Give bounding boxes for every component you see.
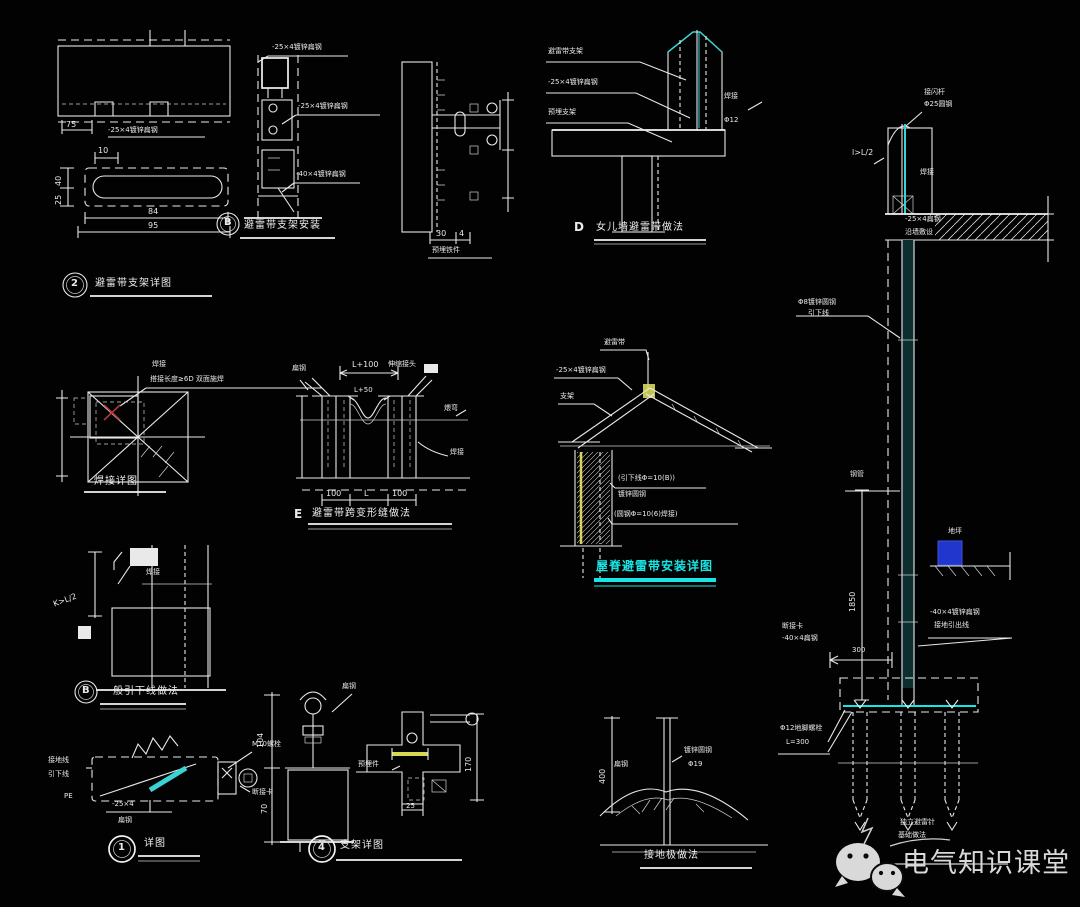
title-ridge: 屋脊避雷带安装详图 bbox=[596, 560, 713, 574]
dim-400: 400 bbox=[598, 769, 607, 784]
dim-84: 84 bbox=[148, 207, 158, 216]
clamp-left-1: 接地线 bbox=[48, 756, 69, 764]
mast-bolt-1: Φ12地脚螺栓 bbox=[780, 724, 822, 732]
badge-b-top: B bbox=[224, 217, 232, 229]
ridge-label-1: 避雷带 bbox=[604, 338, 625, 346]
mast-l3a: 断接卡 bbox=[782, 622, 803, 630]
badge-2: 2 bbox=[71, 278, 78, 290]
detail-clamp-lines bbox=[86, 736, 257, 862]
bracket4-mid-label: 预埋件 bbox=[358, 760, 379, 768]
mast-l2: l>L/2 bbox=[852, 148, 873, 157]
stem-label-1: -25×4镀锌扁钢 bbox=[272, 43, 322, 51]
bracket4-top-label: 扁钢 bbox=[342, 682, 356, 690]
weld-label: 搭接长度≥6D 双面施焊 bbox=[150, 375, 224, 383]
dim-10: 10 bbox=[98, 146, 108, 155]
title-parapet: 女儿墙避雷带做法 bbox=[596, 222, 684, 234]
dim-75: 75 bbox=[66, 120, 76, 129]
mast-l3b: -40×4扁钢 bbox=[782, 634, 818, 642]
mast-top-label-1: 接闪杆 bbox=[924, 88, 945, 96]
dim-30: 30 bbox=[436, 229, 446, 238]
dim-95: 95 bbox=[148, 221, 158, 230]
cad-linework bbox=[0, 0, 1080, 907]
clamp-right-label: 断接卡 bbox=[252, 788, 273, 796]
mast-right-label-2: 接地引出线 bbox=[934, 621, 969, 629]
clamp-pe-note: PE bbox=[64, 792, 73, 800]
rod-right-label-2: Φ19 bbox=[688, 760, 702, 768]
stem-label-3: -40×4镀锌扁钢 bbox=[296, 170, 346, 178]
detail-rodground-lines bbox=[600, 716, 768, 868]
title-stem-bracket: 避雷带支架安装 bbox=[244, 220, 321, 232]
mast-ground-note: 地坪 bbox=[948, 527, 962, 535]
stem-label-2: -25×4镀锌扁钢 bbox=[298, 102, 348, 110]
title-wall-embed: 预埋铁件 bbox=[432, 246, 460, 254]
dim-104: 104 bbox=[256, 733, 265, 748]
watermark-text: 电气知识课堂 bbox=[902, 848, 1070, 879]
title-clamp: 详图 bbox=[144, 838, 166, 850]
detail-joint-lines bbox=[296, 364, 470, 529]
dim-100b: 100 bbox=[392, 489, 407, 498]
joint-label-br: 焊接 bbox=[450, 448, 464, 456]
title-slab-bracket: 避雷带支架详图 bbox=[95, 278, 172, 290]
mast-mid-label-1: Φ8镀锌圆钢 bbox=[798, 298, 836, 306]
rod-right-label-1: 镀锌圆钢 bbox=[684, 746, 712, 754]
mast-band-2: 沿墙敷设 bbox=[905, 228, 933, 236]
mast-band-1: -25×4扁钢 bbox=[905, 215, 941, 223]
ridge-note-a2: 镀锌圆钢 bbox=[618, 490, 646, 498]
dim-25b: 25 bbox=[406, 802, 415, 810]
downlead-note: 焊接 bbox=[146, 568, 160, 576]
dim-300: 300 bbox=[852, 646, 865, 654]
title-downlead: 一般引下线做法 bbox=[102, 686, 179, 698]
joint-label-r: 煨弯 bbox=[444, 404, 458, 412]
joint-label-tl: 扁钢 bbox=[292, 364, 306, 372]
title-joint: 避雷带跨变形缝做法 bbox=[312, 508, 411, 520]
parapet-label-1: 避雷带支架 bbox=[548, 47, 583, 55]
flat-steel-note: -25×4镀锌扁钢 bbox=[108, 126, 158, 134]
parapet-note-a: 焊接 bbox=[724, 92, 738, 100]
mast-mid-label-2: 引下线 bbox=[808, 309, 829, 317]
badge-d: D bbox=[574, 221, 584, 235]
dim-1850: 1850 bbox=[848, 592, 857, 612]
detail-stem-bracket-lines bbox=[217, 55, 380, 238]
parapet-note-b: Φ12 bbox=[724, 116, 738, 124]
badge-4: 4 bbox=[318, 842, 325, 854]
badge-b-low: B bbox=[82, 685, 90, 697]
dim-l50: L+50 bbox=[354, 386, 373, 394]
joint-label-tr: 伸缩接头 bbox=[388, 360, 416, 368]
detail-slab-bracket-lines bbox=[58, 30, 230, 297]
clamp-left-2: 引下线 bbox=[48, 770, 69, 778]
dim-100a: 100 bbox=[326, 489, 341, 498]
badge-e: E bbox=[294, 508, 302, 522]
dim-l: L bbox=[364, 489, 368, 498]
detail-wall-embed-lines bbox=[402, 62, 514, 258]
mast-cap-2: 基础做法 bbox=[898, 831, 926, 839]
dim-25: 25 bbox=[54, 195, 63, 205]
cad-drawing-sheet: 75 -25×4镀锌扁钢 10 40 25 84 95 2 避雷带支架详图 -2… bbox=[0, 0, 1080, 907]
ridge-note-b: (圆钢Φ=10(6)焊接) bbox=[614, 510, 678, 518]
ridge-label-2: -25×4镀锌扁钢 bbox=[556, 366, 606, 374]
title-rodground: 接地极做法 bbox=[644, 850, 699, 862]
mast-cap-1: 独立避雷针 bbox=[900, 818, 935, 826]
dim-170: 170 bbox=[464, 757, 473, 772]
title-bracket4: 支架详图 bbox=[340, 840, 384, 852]
mast-top-label-2: Φ25圆钢 bbox=[924, 100, 952, 108]
parapet-label-2: -25×4镀锌扁钢 bbox=[548, 78, 598, 86]
mast-right-label-1: -40×4镀锌扁钢 bbox=[930, 608, 980, 616]
dim-l100: L+100 bbox=[352, 360, 378, 369]
mast-pipe-label: 钢管 bbox=[850, 470, 864, 478]
detail-bracket4-lines bbox=[264, 692, 484, 862]
badge-1: 1 bbox=[118, 842, 125, 854]
dim-40: 40 bbox=[54, 176, 63, 186]
mast-weld-note: 焊接 bbox=[920, 168, 934, 176]
dim-70: 70 bbox=[260, 804, 269, 814]
rod-left-label: 扁钢 bbox=[614, 760, 628, 768]
mast-bolt-2: L=300 bbox=[786, 738, 809, 746]
ridge-label-3: 支架 bbox=[560, 392, 574, 400]
parapet-label-3: 预埋支架 bbox=[548, 108, 576, 116]
detail-ridge-lines bbox=[554, 350, 772, 586]
weld-note: 焊接 bbox=[152, 360, 166, 368]
title-weld: 焊接详图 bbox=[94, 476, 138, 488]
detail-parapet-lines bbox=[546, 30, 762, 244]
dim-4: 4 bbox=[459, 229, 464, 238]
clamp-note-b1: -25×4 bbox=[112, 800, 134, 808]
clamp-note-b2: 扁钢 bbox=[118, 816, 132, 824]
ridge-note-a: (引下线Φ=10(B)) bbox=[618, 474, 675, 482]
